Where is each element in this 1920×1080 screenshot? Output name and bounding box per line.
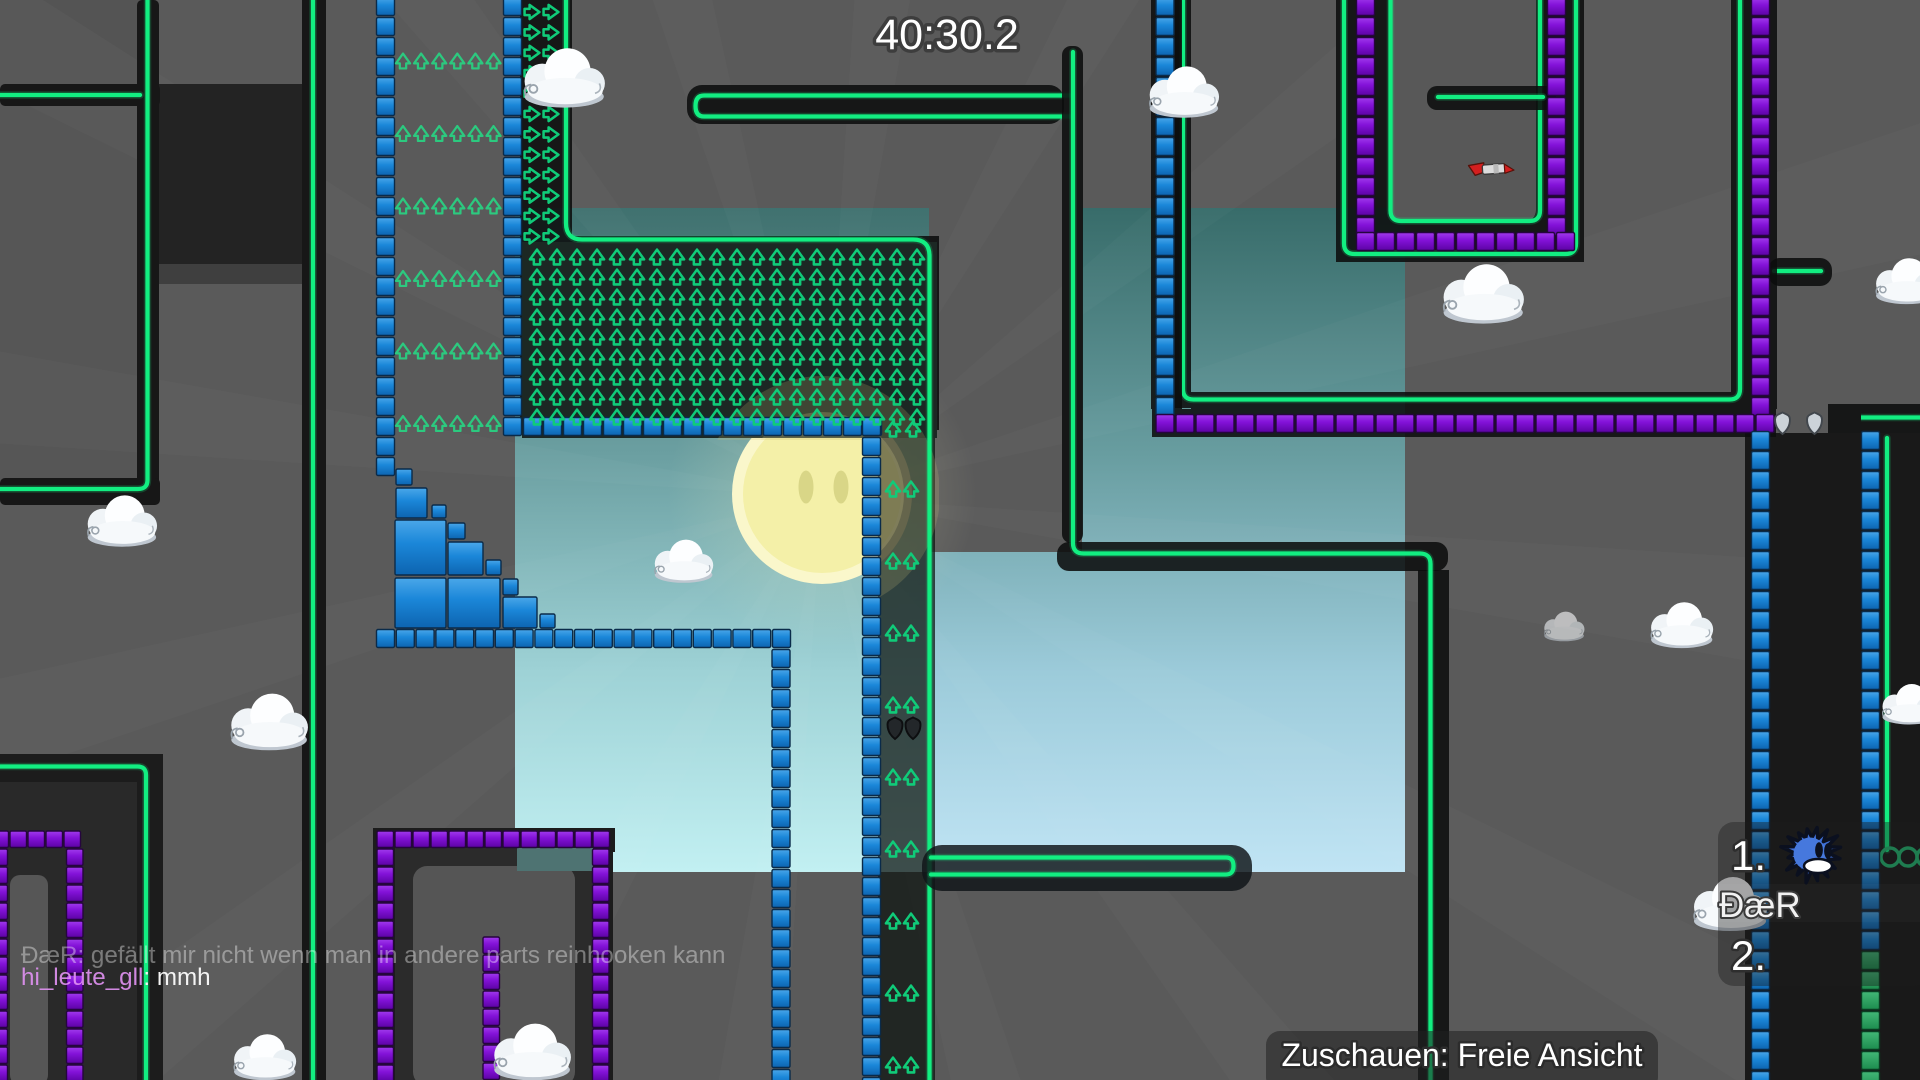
- svg-text:hi_leute_gll: mmh: hi_leute_gll: mmh: [21, 964, 211, 991]
- svg-text:2.: 2.: [1731, 932, 1766, 979]
- svg-text:40:30.2: 40:30.2: [875, 11, 1018, 59]
- svg-text:Zuschauen: Freie Ansicht: Zuschauen: Freie Ansicht: [1281, 1037, 1642, 1073]
- svg-text:1.: 1.: [1731, 832, 1766, 879]
- svg-text:ÐæR: ÐæR: [1719, 886, 1801, 925]
